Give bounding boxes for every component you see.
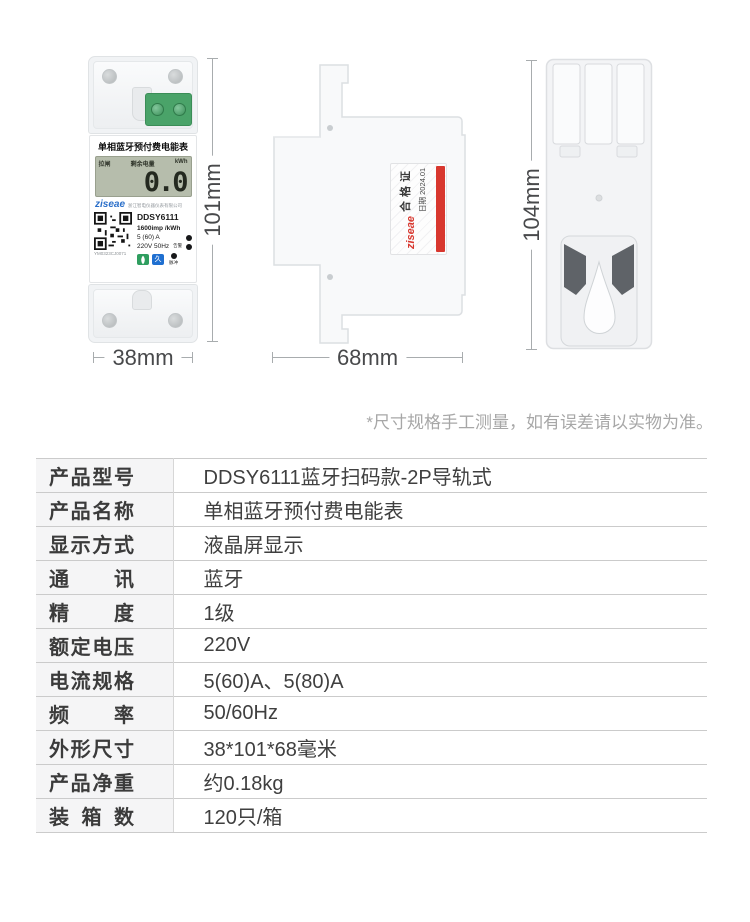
brand-row: ziseae 浙江智电仪器仪表有限公司 <box>95 200 192 210</box>
dimension-tick <box>207 58 218 59</box>
product-views: 单相蓝牙预付费电能表 拉闸 剩余电量 kWh 0.0 ziseae 浙江智电仪器… <box>0 0 750 446</box>
spec-row: 外形尺寸38*101*68毫米 <box>36 731 707 765</box>
vent-slot <box>585 64 612 144</box>
spec-row: 频率50/60Hz <box>36 697 707 731</box>
spec-value: 50/60Hz <box>173 697 707 731</box>
spec-value: 液晶屏显示 <box>173 527 707 561</box>
spec-table: 产品型号DDSY6111蓝牙扫码款-2P导轨式产品名称单相蓝牙预付费电能表显示方… <box>36 458 707 833</box>
spec-row: 产品名称单相蓝牙预付费电能表 <box>36 493 707 527</box>
meter-front-photo: 单相蓝牙预付费电能表 拉闸 剩余电量 kWh 0.0 ziseae 浙江智电仪器… <box>88 56 198 343</box>
impulse-rate: 1600imp /kWh <box>137 224 192 233</box>
spec-label-cell: 电流规格 <box>36 663 173 697</box>
spec-row: 电流规格5(60)A、5(80)A <box>36 663 707 697</box>
spec-label: 产品净重 <box>49 767 134 796</box>
blue-function-button[interactable]: 久 <box>152 254 164 265</box>
spec-label: 产品型号 <box>49 461 134 490</box>
screw-hole <box>596 195 602 201</box>
spec-label: 装箱数 <box>49 801 134 830</box>
spec-label: 电流规格 <box>49 665 134 694</box>
cover-clip <box>132 290 152 310</box>
qr-column: YM0323CJ0071 <box>94 212 133 266</box>
vent-slot <box>617 64 644 144</box>
pulse-label: 脉冲 <box>169 260 178 266</box>
spec-label: 通讯 <box>49 563 134 592</box>
dimension-height-front: 101mm <box>201 58 225 342</box>
green-function-button[interactable] <box>137 254 149 265</box>
terminal-screw-icon <box>173 103 186 116</box>
screw-icon <box>102 69 117 84</box>
terminal-block <box>145 93 192 126</box>
spec-label: 外形尺寸 <box>49 733 134 762</box>
dimension-value: 104mm <box>519 160 545 249</box>
terminal-screw-icon <box>151 103 164 116</box>
spec-value: 38*101*68毫米 <box>173 731 707 765</box>
screw-icon <box>102 313 117 328</box>
indicator-led-icon <box>186 235 192 241</box>
spec-label-cell: 产品净重 <box>36 765 173 799</box>
dimension-tick <box>207 341 218 342</box>
spec-label-cell: 显示方式 <box>36 527 173 561</box>
screw-icon <box>327 274 333 280</box>
button-row: 久 脉冲 <box>137 253 192 266</box>
certificate-title: 合格证 <box>400 167 412 212</box>
meter-side-photo: ziseae 合格证 日期 2024.01 <box>272 55 467 345</box>
spec-row: 显示方式液晶屏显示 <box>36 527 707 561</box>
terminal-cover-top <box>88 56 198 134</box>
pulse-indicator: 脉冲 <box>169 253 178 266</box>
meter-spec-column: DDSY6111 1600imp /kWh 5 (60) A 220V 50Hz… <box>137 212 192 266</box>
lcd-status: 拉闸 <box>99 159 111 168</box>
dimension-value: 101mm <box>200 155 226 244</box>
dimension-depth-side: 68mm <box>272 346 463 370</box>
screw-icon <box>168 69 183 84</box>
dimension-tick <box>192 352 193 363</box>
spec-row: 精度1级 <box>36 595 707 629</box>
dimension-tick <box>272 352 273 363</box>
meter-face-body: YM0323CJ0071 DDSY6111 1600imp /kWh 5 (60… <box>94 212 192 266</box>
spec-label-cell: 外形尺寸 <box>36 731 173 765</box>
screw-icon <box>168 313 183 328</box>
meter-title: 单相蓝牙预付费电能表 <box>94 140 192 153</box>
vent-slot <box>553 64 580 144</box>
spec-label-cell: 精度 <box>36 595 173 629</box>
terminal-cover-bottom <box>88 284 198 343</box>
spec-value: 220V <box>173 629 707 663</box>
mount-tab <box>560 146 580 157</box>
screw-icon <box>327 125 333 131</box>
spec-label: 产品名称 <box>49 495 134 524</box>
spec-row: 产品净重约0.18kg <box>36 765 707 799</box>
certificate-card: ziseae 合格证 日期 2024.01 <box>390 163 447 255</box>
dimension-tick <box>462 352 463 363</box>
spec-value: 120只/箱 <box>173 799 707 833</box>
certificate-date: 日期 2024.01 <box>417 167 428 212</box>
dimension-tick <box>526 60 537 61</box>
spec-value: 蓝牙 <box>173 561 707 595</box>
serial-number: YM0323CJ0071 <box>94 251 133 256</box>
current-spec: 5 (60) A <box>137 233 160 242</box>
spec-value: 约0.18kg <box>173 765 707 799</box>
spec-value: 单相蓝牙预付费电能表 <box>173 493 707 527</box>
current-row: 5 (60) A <box>137 233 192 242</box>
spec-row: 通讯蓝牙 <box>36 561 707 595</box>
spec-label-cell: 产品型号 <box>36 459 173 493</box>
dimension-height-back: 104mm <box>520 60 544 350</box>
leaf-icon <box>139 256 147 264</box>
spec-label: 额定电压 <box>49 631 134 660</box>
spec-row: 装箱数120只/箱 <box>36 799 707 833</box>
voltage-row: 220V 50Hz 告警 <box>137 242 192 251</box>
spec-label-cell: 额定电压 <box>36 629 173 663</box>
spec-value: 1级 <box>173 595 707 629</box>
meter-back-silhouette <box>545 58 653 350</box>
spec-label: 频率 <box>49 699 134 728</box>
dimension-width-front: 38mm <box>93 346 193 370</box>
spec-value: DDSY6111蓝牙扫码款-2P导轨式 <box>173 459 707 493</box>
spec-label-cell: 频率 <box>36 697 173 731</box>
dimension-value: 68mm <box>329 345 406 371</box>
spec-label-cell: 通讯 <box>36 561 173 595</box>
lcd-reading: 0.0 <box>144 169 187 197</box>
alarm-label: 告警 <box>173 243 182 249</box>
voltage-spec: 220V 50Hz <box>137 242 169 251</box>
pulse-led-icon <box>171 253 177 259</box>
certificate-sticker: ziseae 合格证 日期 2024.01 <box>390 163 447 255</box>
mount-tab <box>617 146 637 157</box>
brand-logo: ziseae <box>95 200 125 210</box>
spec-label-cell: 产品名称 <box>36 493 173 527</box>
measurement-disclaimer: *尺寸规格手工测量，如有误差请以实物为准。 <box>366 408 713 433</box>
spec-label-cell: 装箱数 <box>36 799 173 833</box>
model-number: DDSY6111 <box>137 212 192 224</box>
meter-face-panel: 单相蓝牙预付费电能表 拉闸 剩余电量 kWh 0.0 ziseae 浙江智电仪器… <box>89 135 197 283</box>
product-detail-page: 单相蓝牙预付费电能表 拉闸 剩余电量 kWh 0.0 ziseae 浙江智电仪器… <box>0 0 750 833</box>
spec-row: 额定电压220V <box>36 629 707 663</box>
dimension-value: 38mm <box>104 345 181 371</box>
qr-code <box>94 212 132 250</box>
spec-table-body: 产品型号DDSY6111蓝牙扫码款-2P导轨式产品名称单相蓝牙预付费电能表显示方… <box>36 459 707 833</box>
spec-row: 产品型号DDSY6111蓝牙扫码款-2P导轨式 <box>36 459 707 493</box>
spec-label: 精度 <box>49 597 134 626</box>
dimension-tick <box>93 352 94 363</box>
dimension-tick <box>526 349 537 350</box>
spec-label: 显示方式 <box>49 529 134 558</box>
company-name: 浙江智电仪器仪表有限公司 <box>128 203 182 209</box>
lcd-display: 拉闸 剩余电量 kWh 0.0 <box>95 156 192 197</box>
sticker-brand-logo: ziseae <box>406 216 417 249</box>
spec-value: 5(60)A、5(80)A <box>173 663 707 697</box>
sticker-red-band <box>436 166 445 252</box>
meter-back-photo <box>545 58 653 350</box>
alarm-led-icon <box>186 244 192 250</box>
